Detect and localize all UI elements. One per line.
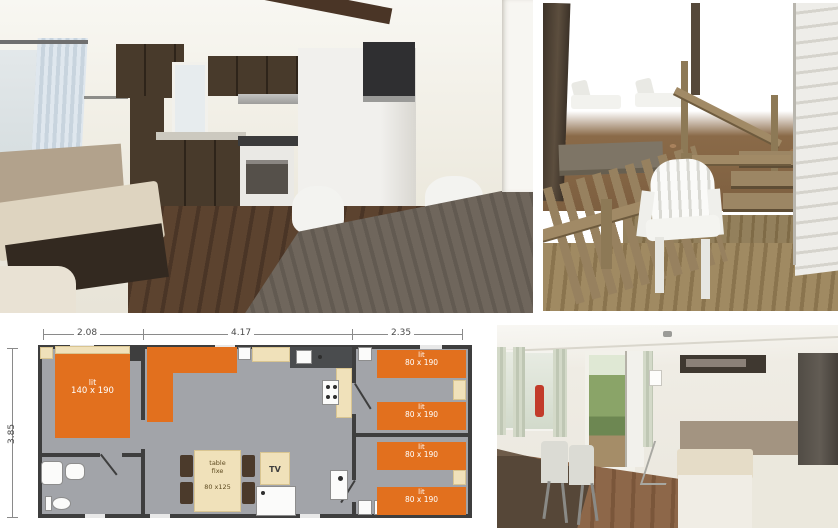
heater-dial (338, 476, 343, 481)
tree-trunk-small (691, 3, 700, 95)
photo-wooden-deck[interactable] (543, 3, 838, 311)
bed-size: 140 x 190 (55, 387, 130, 397)
window-opening (300, 514, 320, 518)
sink (296, 350, 312, 364)
single-bed: lit 80 x 190 (377, 350, 466, 378)
fridge-icon (256, 486, 296, 516)
window-opening (85, 514, 105, 518)
single-bed: lit 80 x 190 (377, 402, 466, 430)
double-bed: lit 140 x 190 (55, 354, 130, 438)
tv-unit: TV (260, 452, 290, 485)
interior-wall (141, 345, 145, 420)
faucet (318, 355, 322, 359)
curtain (497, 347, 506, 435)
range-hood (238, 94, 300, 104)
bed-size: 80 x 190 (377, 451, 466, 460)
burner-dots (326, 385, 330, 389)
ceiling-edge (497, 335, 838, 352)
interior-wall (352, 414, 356, 480)
dimension-width-left: 2.08 (74, 328, 100, 339)
wall-shelf-inner (686, 359, 746, 367)
bedside-shelf (453, 470, 466, 485)
bedside-shelf (453, 380, 466, 400)
bedroom-divider-wall (356, 433, 472, 437)
floor-plan[interactable]: 2.08 4.17 2.35 3.85 lit (0, 322, 492, 530)
water-heater (330, 470, 348, 500)
wall-pillar (502, 0, 533, 192)
dining-chair (242, 482, 255, 504)
dimension-height: 3.85 (7, 418, 17, 444)
stair-post (681, 61, 688, 159)
toilet-tank (45, 496, 52, 511)
closet-icon (358, 500, 372, 515)
sofa-side (147, 373, 173, 422)
interior-wall (141, 449, 145, 518)
closet-icon (358, 347, 372, 361)
single-bed: lit 80 x 190 (377, 487, 466, 515)
upper-cabinets (208, 56, 306, 96)
headboard-shelf (55, 346, 130, 354)
ceiling-detector (663, 331, 672, 337)
dimension-width-middle: 4.17 (228, 328, 254, 339)
nightstand (40, 347, 53, 359)
toilet (52, 497, 71, 510)
door-leaf (625, 351, 644, 467)
kitchen-counter (156, 132, 246, 140)
bench-corner (744, 455, 838, 528)
interior-wall (352, 345, 356, 383)
bed-size: 80 x 190 (377, 359, 466, 368)
curtain-rod (0, 40, 88, 44)
bench-front (678, 475, 752, 528)
photo-interior-kitchen-living[interactable] (0, 0, 533, 313)
table-label-2: fixe (212, 467, 224, 475)
bed-size: 80 x 190 (377, 496, 466, 505)
chair-back (569, 445, 594, 485)
fridge-handle (261, 491, 265, 495)
shower (41, 461, 63, 485)
dimension-tick (352, 329, 353, 340)
cooktop (238, 136, 300, 146)
curtain (513, 347, 525, 437)
column-icon (238, 347, 251, 360)
wardrobe (129, 347, 141, 361)
chair-back (541, 441, 568, 483)
dimension-tick (7, 348, 18, 349)
photo-dining-living[interactable] (497, 325, 838, 528)
window-opening (420, 345, 442, 349)
chair-leg (655, 237, 664, 293)
fixed-table: table fixe 80 x125 (194, 450, 241, 512)
bed-size: 80 x 190 (377, 411, 466, 420)
table-label-1: table (209, 459, 225, 467)
interior-wall (352, 502, 356, 518)
curtain (643, 351, 653, 447)
dimension-tick (43, 329, 44, 340)
sofa-top (147, 347, 237, 373)
kitchen-worktop (252, 347, 290, 362)
dimension-width-right: 2.35 (388, 328, 414, 339)
dimension-tick (462, 329, 463, 340)
oven (240, 146, 294, 214)
door-opening (150, 514, 170, 518)
chair-leg (701, 239, 710, 299)
bathroom-wall (122, 453, 141, 457)
bathroom-wall (42, 453, 100, 457)
curtain (553, 349, 567, 437)
cooktop-icon (322, 380, 339, 405)
photo-collage: 2.08 4.17 2.35 3.85 lit (0, 0, 840, 530)
single-bed: lit 80 x 190 (377, 442, 466, 470)
dimension-tick (143, 329, 144, 340)
dining-chair (242, 455, 255, 477)
wall-notice (649, 370, 662, 386)
wardrobe (798, 353, 838, 465)
ceiling-beam (262, 0, 393, 24)
dining-chair (180, 482, 193, 504)
sun-lounger (571, 95, 621, 109)
mobile-home-wall (795, 3, 838, 276)
table-size: 80 x125 (204, 483, 231, 491)
railing-post (601, 199, 612, 269)
dining-chair (180, 455, 193, 477)
oven-door (246, 160, 288, 194)
wall-corner-edge (793, 3, 796, 265)
washbasin (65, 463, 85, 480)
fire-extinguisher (535, 385, 544, 417)
microwave (363, 42, 415, 102)
dimension-tick (7, 517, 18, 518)
sofa-corner-cushion (0, 266, 76, 313)
